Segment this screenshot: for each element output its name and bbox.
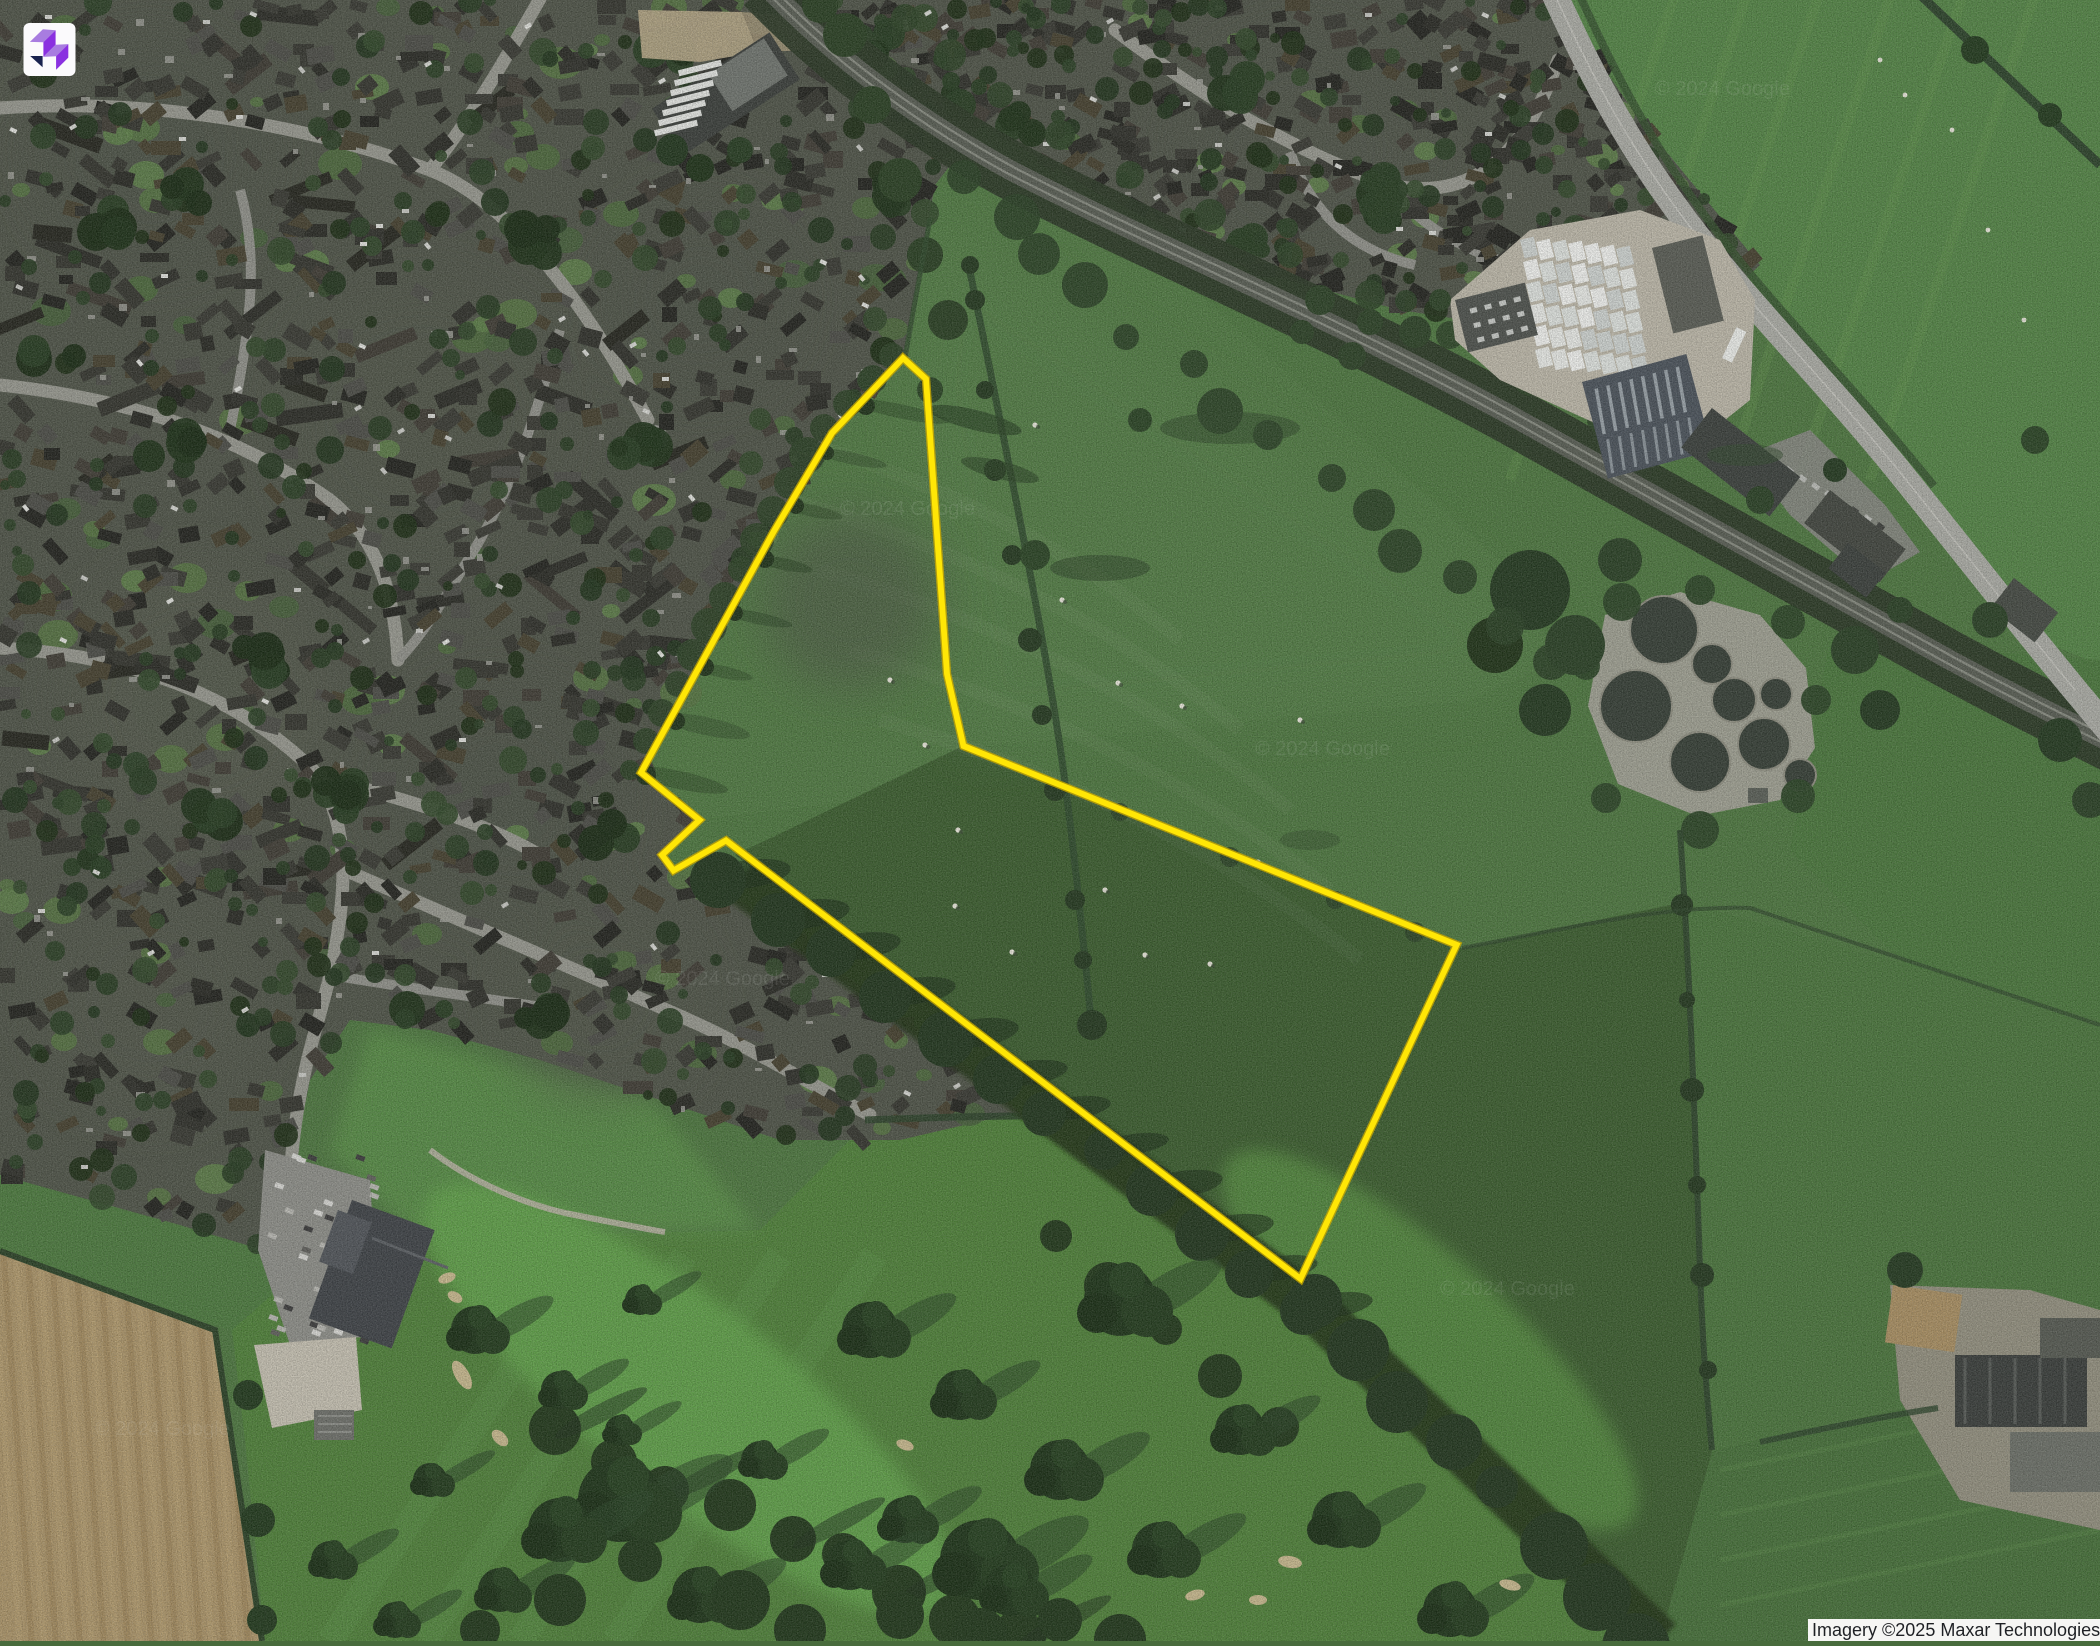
svg-text:Imagery ©2025 Maxar Technologi: Imagery ©2025 Maxar Technologies [1812,1620,2100,1640]
